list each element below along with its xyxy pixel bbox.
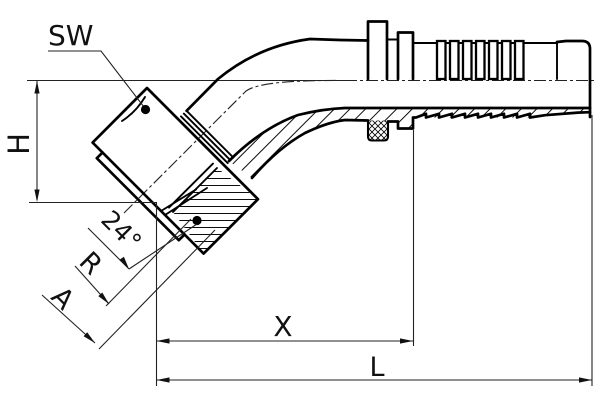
h-arrow-down <box>34 190 39 203</box>
fitting-drawing: SW H 24° R A X L <box>0 0 600 400</box>
label-r: R <box>73 246 108 281</box>
barb-rib <box>476 41 485 79</box>
barb-rib <box>463 41 472 79</box>
barb-rib <box>489 41 498 79</box>
l-arrow-right <box>579 377 592 382</box>
x-arrow-right <box>400 338 413 343</box>
collar-behind-nut <box>181 111 233 163</box>
label-h: H <box>2 133 36 155</box>
bend-outer-contour <box>187 39 368 111</box>
nipple-end-cap <box>557 41 590 117</box>
nipple-wall-section-hatch <box>229 108 590 178</box>
label-sw: SW <box>48 19 93 52</box>
seal-ring-section <box>368 121 388 141</box>
barb-rib <box>437 41 446 79</box>
barb-rib <box>450 41 459 79</box>
collar-ring <box>398 33 413 80</box>
barb-rib <box>515 41 524 79</box>
barb-rib <box>502 41 511 79</box>
label-l: L <box>369 352 384 383</box>
l-arrow-left <box>157 377 170 382</box>
label-a: A <box>45 281 80 316</box>
dimension-x: X <box>157 130 414 386</box>
x-arrow-left <box>157 338 170 343</box>
cone-angle-arrow <box>120 257 130 269</box>
dimension-l: L <box>157 115 593 386</box>
label-x: X <box>273 310 292 343</box>
callout-diameter-a: A <box>42 281 95 343</box>
label-cone-angle: 24° <box>95 205 147 257</box>
technical-drawing-page: SW H 24° R A X L <box>0 0 600 400</box>
hose-stop-flange <box>368 22 387 80</box>
centerlines <box>27 80 597 213</box>
sw-leader-line <box>48 51 144 107</box>
barb-ribs <box>437 41 524 79</box>
h-arrow-up <box>34 81 39 94</box>
sw-leader-dot <box>141 105 150 114</box>
cone-leader-dot <box>192 216 201 225</box>
